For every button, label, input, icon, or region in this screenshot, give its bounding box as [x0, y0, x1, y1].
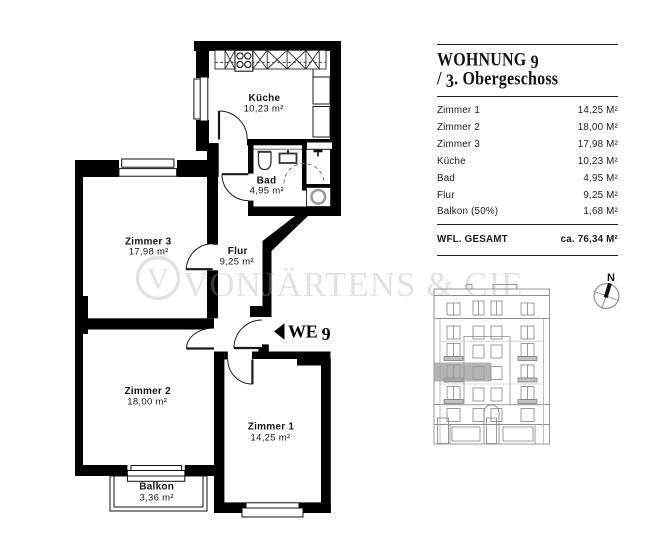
svg-text:N: N: [607, 272, 615, 284]
svg-text:4,95 m²: 4,95 m²: [250, 186, 284, 197]
svg-text:Zimmer 1: Zimmer 1: [248, 422, 295, 433]
svg-text:14,25 m²: 14,25 m²: [251, 433, 291, 444]
svg-text:10,23 m²: 10,23 m²: [244, 103, 284, 114]
svg-text:WE 9: WE 9: [288, 322, 331, 345]
svg-text:3,36 m²: 3,36 m²: [140, 492, 174, 503]
svg-text:18,00 m²: 18,00 m²: [127, 396, 167, 407]
svg-text:Küche: Küche: [248, 93, 280, 104]
svg-text:VONJÄRTENS & CIE: VONJÄRTENS & CIE: [183, 265, 524, 304]
svg-text:Balkon: Balkon: [139, 482, 174, 493]
svg-text:17,98 m²: 17,98 m²: [129, 247, 169, 258]
svg-text:V: V: [147, 261, 170, 296]
